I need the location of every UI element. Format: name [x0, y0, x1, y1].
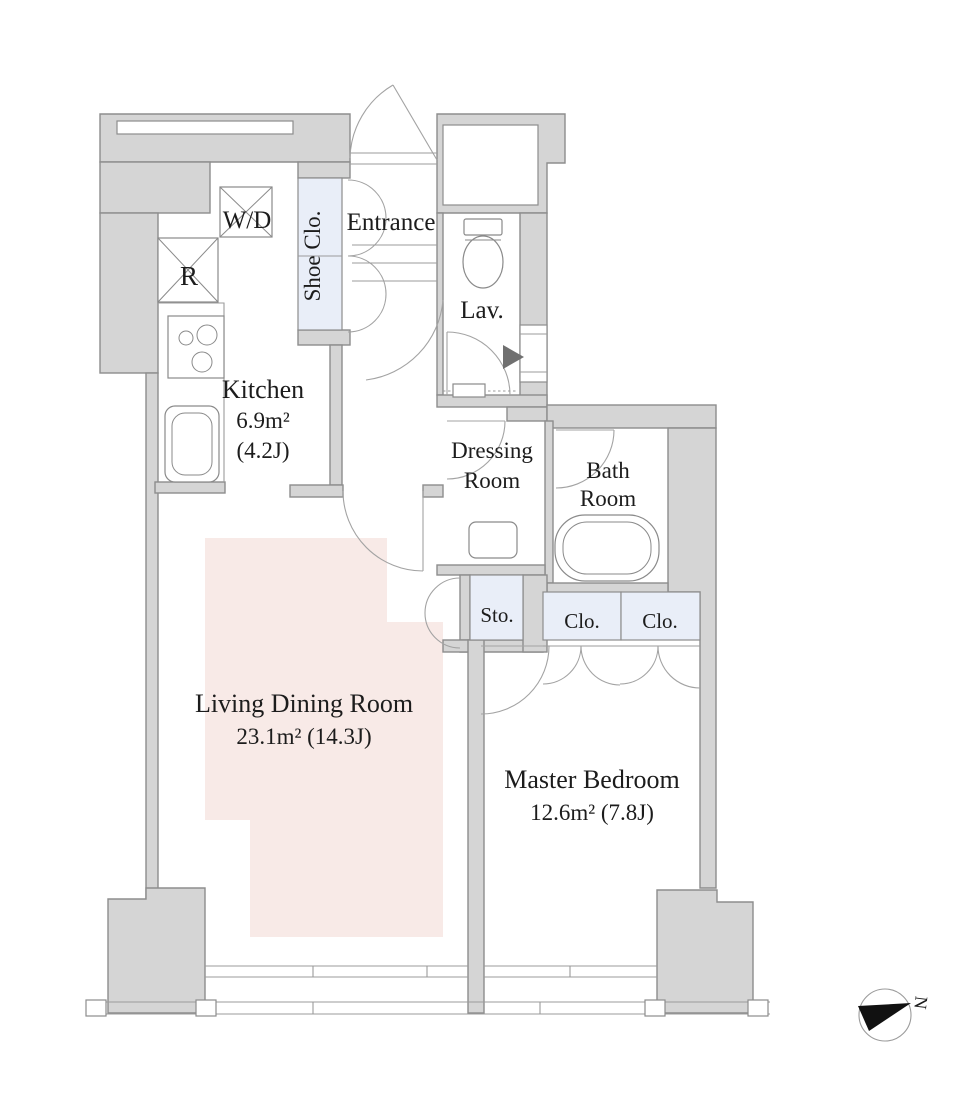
washbasin-icon [469, 522, 517, 558]
label-closet-left: Clo. [564, 609, 600, 633]
wall-dressing-top-right [507, 407, 547, 421]
shoe-closet-door-lower [348, 256, 386, 332]
wall-left-column [100, 213, 158, 373]
wall-living-door-left-stub [290, 485, 343, 497]
compass-north-label: N [910, 995, 931, 1010]
wall-kitchen-counter-end [155, 482, 225, 493]
wall-right-band [668, 428, 716, 888]
label-kitchen-area-m2: 6.9m² [236, 408, 290, 433]
hall-door-swing [366, 300, 443, 380]
entrance-door-swing [350, 85, 393, 158]
label-master-bedroom-area: 12.6m² (7.8J) [530, 800, 654, 825]
balcony-rail-cap-2 [196, 1000, 216, 1016]
bedroom-door-swing [481, 646, 549, 714]
storage-door-upper [425, 578, 460, 613]
floor-plan-page: N Entrance Shoe Clo. W/D R Kitchen 6.9m²… [0, 0, 965, 1098]
wall-living-door-right-stub [423, 485, 443, 497]
label-lavatory: Lav. [460, 297, 504, 324]
label-storage: Sto. [480, 603, 513, 627]
label-dressing-line2: Room [464, 468, 520, 493]
label-master-bedroom: Master Bedroom [504, 765, 679, 794]
kitchen-sink-icon [165, 406, 219, 482]
balcony-rail-cap-1 [86, 1000, 106, 1016]
wall-dressing-bottom [437, 565, 545, 575]
label-living-dining-area: 23.1m² (14.3J) [236, 724, 371, 749]
label-bath-line1: Bath [586, 458, 630, 483]
label-entrance: Entrance [347, 209, 436, 236]
top-wall-window-slit [117, 121, 293, 134]
balcony-rail-cap-3 [645, 1000, 665, 1016]
compass-north-arrow-icon [858, 1003, 911, 1031]
lavatory-cabinet [453, 384, 485, 397]
label-kitchen-area-jo: (4.2J) [236, 438, 289, 463]
label-living-dining: Living Dining Room [195, 689, 413, 718]
wall-left-upper-block [100, 162, 210, 213]
label-kitchen: Kitchen [222, 375, 304, 404]
wall-living-bedroom-partition [468, 640, 484, 1013]
closet-left-door-b [581, 646, 620, 685]
wall-dressing-bath-divider [545, 421, 553, 583]
compass: N [858, 989, 932, 1041]
meter-box-alcove [443, 125, 538, 205]
wall-kitchen-corridor [330, 345, 342, 485]
closet-right-door-b [658, 646, 700, 688]
pillar-bottom-right [657, 890, 753, 1013]
wall-bath-top [547, 405, 716, 428]
wall-shoe-closet-bottom-stub [298, 330, 350, 345]
stove-icon [168, 316, 224, 378]
toilet-tank-icon [464, 219, 502, 235]
wall-left-lower [146, 373, 158, 899]
balcony-rail-cap-4 [748, 1000, 768, 1016]
label-bath-line2: Room [580, 486, 636, 511]
label-shoe-closet: Shoe Clo. [300, 211, 325, 302]
label-closet-right: Clo. [642, 609, 678, 633]
bathtub-outer [555, 515, 659, 581]
toilet-bowl-icon [463, 236, 503, 288]
label-dressing-line1: Dressing [451, 438, 533, 463]
label-refrigerator: R [180, 261, 198, 291]
closet-right-door-a [620, 646, 658, 684]
wall-shoe-closet-top-stub [298, 162, 350, 178]
pillar-bottom-left [108, 888, 205, 1013]
label-washer-dryer: W/D [223, 207, 272, 234]
wall-storage-left [460, 575, 470, 648]
floor-plan-drawing: N Entrance Shoe Clo. W/D R Kitchen 6.9m²… [0, 0, 965, 1098]
entrance-door-leaf [393, 85, 437, 160]
